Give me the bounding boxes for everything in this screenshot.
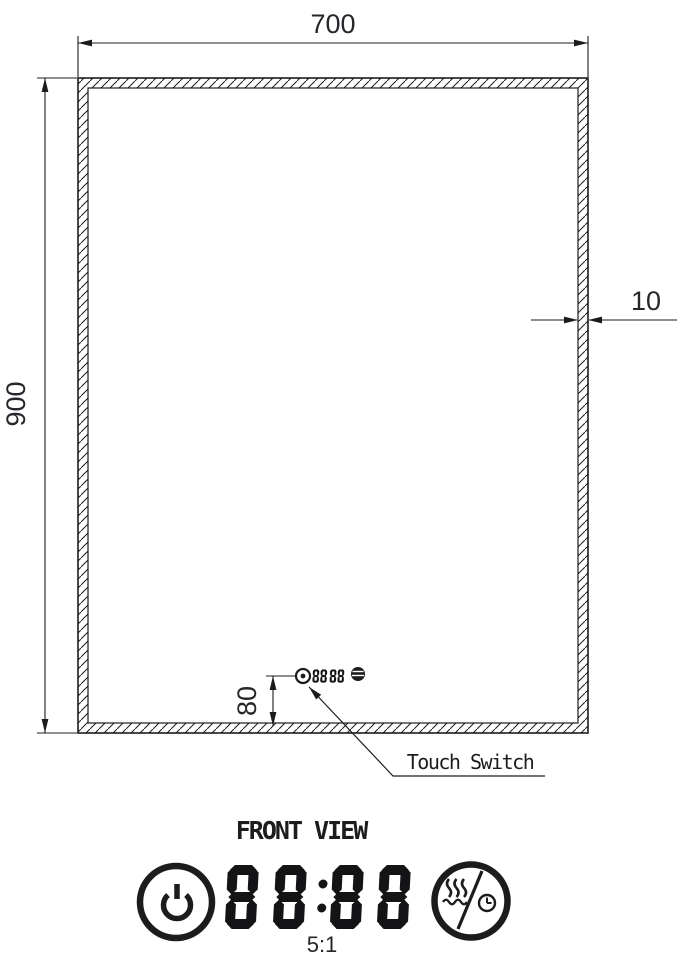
touch-panel-detail-view: 5:1 [140, 865, 508, 958]
defogger-timer-icon [435, 865, 508, 938]
dimension-thickness: 10 [531, 286, 677, 323]
touch-switch-label: Touch Switch [407, 750, 534, 774]
clock-glyph [479, 895, 495, 911]
mini-power-icon [296, 669, 310, 683]
detail-scale-label: 5:1 [307, 932, 338, 957]
technical-drawing: 700 900 10 80 [0, 0, 680, 970]
mirror-frame-hatch [78, 78, 588, 733]
arrowhead-top [42, 78, 49, 92]
dimension-height: 900 [1, 78, 77, 733]
segment-display [225, 865, 411, 929]
mini-defogger-icon [351, 667, 365, 681]
view-title: FRONT VIEW [236, 816, 369, 845]
mirror-front-view [78, 78, 588, 733]
power-icon [140, 866, 212, 938]
dimension-switch-offset-value: 80 [232, 686, 262, 716]
arrowhead-inward-left [564, 317, 578, 324]
touch-switch-indicator [296, 667, 365, 683]
dimension-thickness-value: 10 [631, 286, 661, 316]
drawing-sheet: 700 900 10 80 [0, 0, 680, 970]
steam-wave [447, 879, 451, 897]
dimension-switch-offset: 80 [232, 676, 295, 726]
arrowhead-left [78, 40, 92, 47]
dimension-height-value: 900 [1, 381, 31, 426]
steam-wave [462, 879, 466, 897]
dimension-width: 700 [78, 9, 588, 77]
mirror-outer-edge [78, 78, 588, 733]
steam-base-wave [443, 900, 467, 905]
mirror-inner-edge [88, 88, 578, 723]
arrowhead-inward-right [588, 317, 602, 324]
steam-wave [455, 879, 459, 897]
arrowhead-right [574, 40, 588, 47]
mini-display [312, 670, 344, 683]
dimension-width-value: 700 [310, 9, 355, 39]
arrowhead-bottom [42, 719, 49, 733]
arrowhead-top [270, 676, 277, 690]
